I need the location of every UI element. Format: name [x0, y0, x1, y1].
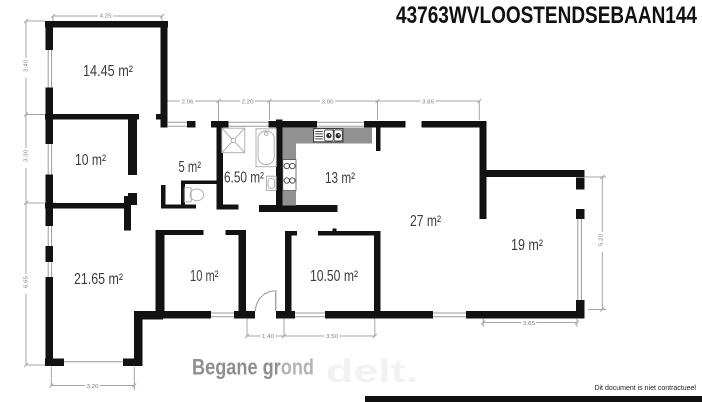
svg-text:1.40: 1.40	[262, 334, 274, 340]
svg-text:delt.: delt.	[326, 353, 418, 389]
svg-text:21.65 m²: 21.65 m²	[74, 271, 123, 288]
svg-text:4.25: 4.25	[100, 14, 112, 20]
svg-text:10.50 m²: 10.50 m²	[310, 268, 358, 285]
svg-text:13 m²: 13 m²	[325, 170, 355, 187]
svg-text:3.85: 3.85	[422, 100, 434, 106]
svg-text:3.50: 3.50	[326, 334, 338, 340]
svg-text:19 m²: 19 m²	[511, 237, 543, 254]
svg-text:6.65: 6.65	[24, 276, 30, 288]
svg-text:14.45 m²: 14.45 m²	[83, 63, 133, 80]
svg-text:3.30: 3.30	[24, 150, 30, 162]
svg-text:3.65: 3.65	[523, 321, 535, 327]
svg-text:3.40: 3.40	[24, 60, 30, 72]
svg-text:2.20: 2.20	[242, 100, 254, 106]
svg-text:27 m²: 27 m²	[410, 213, 441, 230]
svg-text:Dit document is niet contractu: Dit document is niet contractueel	[594, 385, 696, 392]
svg-text:5 m²: 5 m²	[179, 159, 202, 176]
svg-text:Begane grond: Begane grond	[192, 355, 314, 380]
svg-text:10 m²: 10 m²	[190, 268, 219, 285]
svg-text:10 m²: 10 m²	[75, 152, 106, 169]
svg-text:43763WVLOOSTENDSEBAAN144: 43763WVLOOSTENDSEBAAN144	[396, 2, 697, 29]
svg-text:2.06: 2.06	[182, 100, 194, 106]
svg-text:5.20: 5.20	[599, 234, 605, 246]
svg-text:6.50 m²: 6.50 m²	[224, 170, 264, 187]
svg-text:3.00: 3.00	[322, 100, 334, 106]
svg-text:3.20: 3.20	[87, 384, 99, 390]
